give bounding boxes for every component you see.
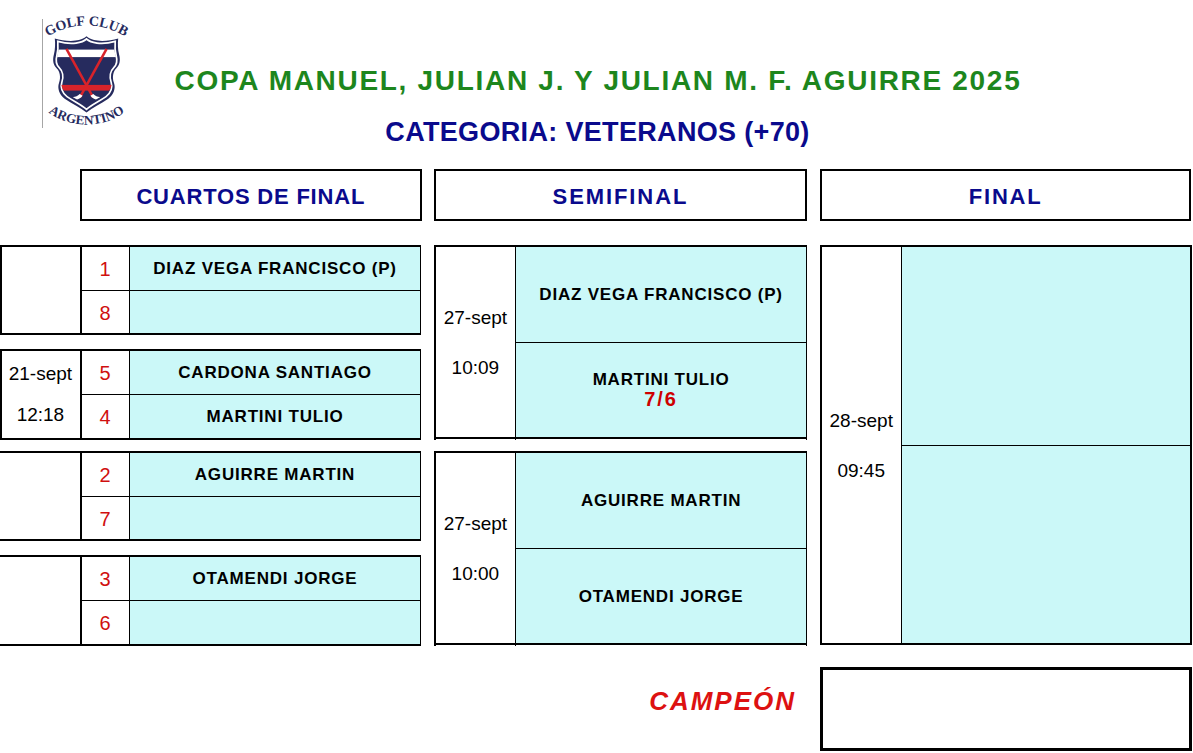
svg-text:GOLF CLUB: GOLF CLUB bbox=[42, 13, 131, 39]
